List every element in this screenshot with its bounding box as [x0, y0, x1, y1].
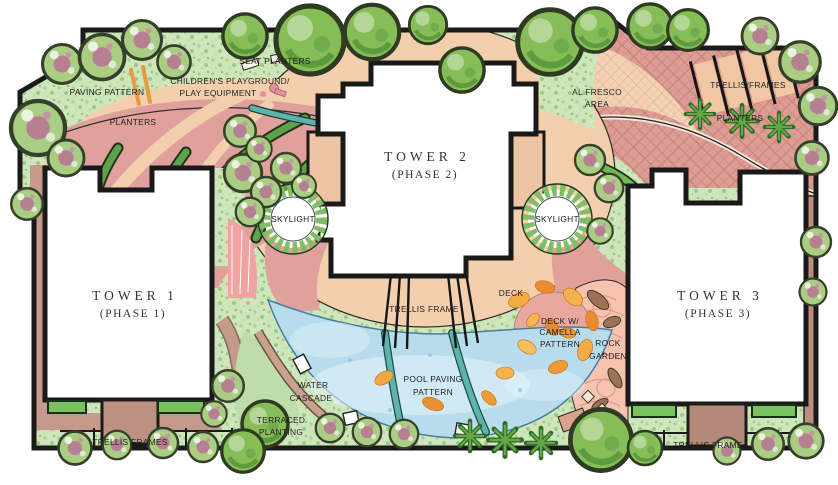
pool-paving-label-line2: PATTERN	[413, 387, 453, 397]
skylight-right-label: SKYLIGHT	[535, 214, 579, 224]
tower-3-label: TOWER 3	[677, 288, 763, 303]
water-cascade-label-line1: WATER	[298, 380, 329, 390]
planters-right-label: PLANTERS	[717, 113, 764, 123]
planter-box	[48, 401, 86, 413]
tower-1-label: TOWER 1	[92, 288, 178, 303]
terraced-planting-label-line1: TERRACED	[257, 415, 305, 425]
trellis-frames-top-label: TRELLIS/FRAMES	[710, 80, 786, 90]
planter-box	[632, 405, 676, 417]
al-fresco-label-line1: AL FRESCO	[572, 87, 622, 97]
childrens-playground-label-line1: CHILDREN'S PLAYGROUND/	[170, 76, 290, 86]
seat-planters-label: SEAT PLANTERS	[239, 56, 311, 66]
deck-camella-label-line1: DECK W/	[541, 316, 579, 326]
al-fresco-label-line2: AREA	[585, 99, 609, 109]
site-plan-canvas: SEAT PLANTERS CHILDREN'S PLAYGROUND/ PLA…	[0, 0, 838, 485]
tower-1-phase-label: (PHASE 1)	[100, 308, 166, 320]
planter-box	[158, 401, 204, 413]
terraced-planting-label-line2: PLANTING	[259, 427, 303, 437]
deck-label: DECK	[499, 288, 524, 298]
trellis-frame-center-label: TRELLIS FRAME	[389, 304, 459, 314]
rock-garden-label-line2: GARDEN	[589, 351, 627, 361]
planter-box	[752, 405, 796, 417]
childrens-playground-label-line2: PLAY EQUIPMENT	[180, 88, 257, 98]
tower-2-phase-label: (PHASE 2)	[392, 169, 458, 181]
rock-garden-label-line1: ROCK	[595, 338, 621, 348]
site-plan-drawing: SEAT PLANTERS CHILDREN'S PLAYGROUND/ PLA…	[0, 0, 838, 485]
water-cascade-label-line2: CASCADE	[290, 393, 333, 403]
skylight-left-label: SKYLIGHT	[271, 214, 315, 224]
tower-3-phase-label: (PHASE 3)	[685, 308, 751, 320]
deck-camella-label-line2: CAMELLA	[539, 327, 580, 337]
trellis-frames-bottom-left-label: TRELLIS FRAMES	[92, 437, 168, 447]
tower-2-label: TOWER 2	[384, 149, 470, 164]
deck-camella-label-line3: PATTERN	[540, 339, 580, 349]
tower-1-footprint	[45, 168, 212, 444]
paving-pattern-label: PAVING PATTERN	[70, 87, 145, 97]
pool-paving-label-line1: POOL PAVING	[404, 374, 463, 384]
planters-left-label: PLANTERS	[110, 117, 157, 127]
trellis-frame-bottom-right-label: TRELLIS FRAME	[673, 440, 743, 450]
